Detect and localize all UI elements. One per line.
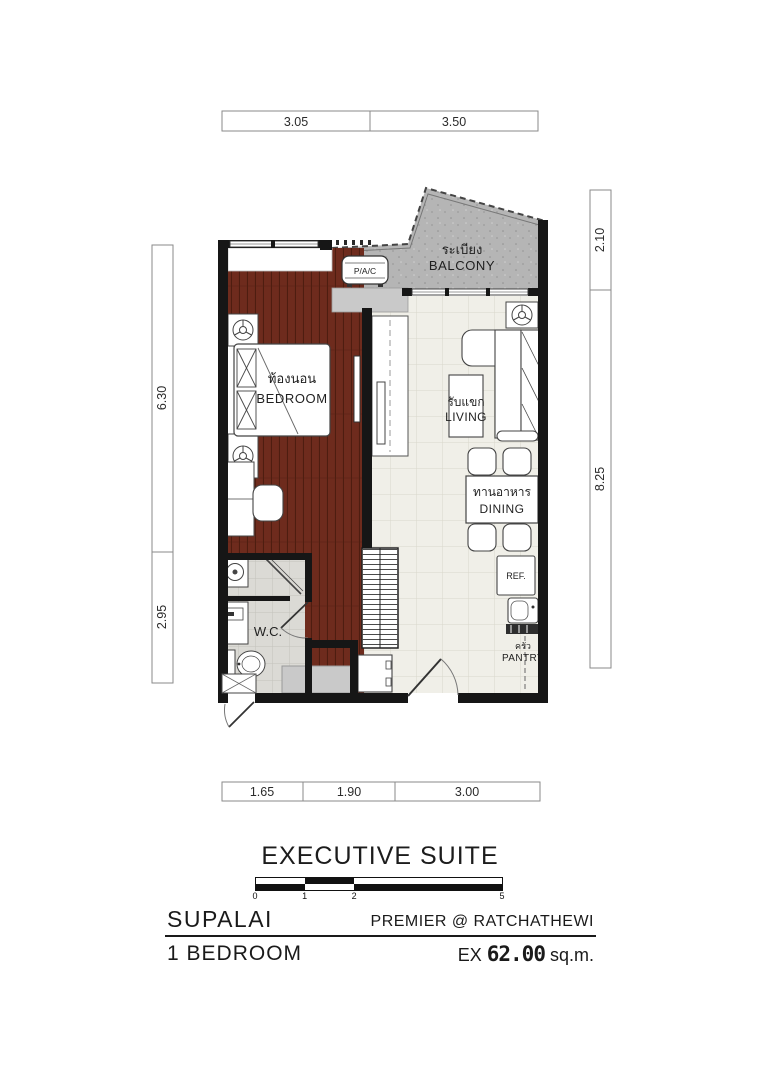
pac-unit: P/A/C bbox=[342, 256, 388, 287]
tv-panel-bedroom bbox=[354, 356, 360, 422]
plan-title: EXECUTIVE SUITE bbox=[0, 842, 760, 871]
corner-table bbox=[506, 302, 538, 328]
hall-counter bbox=[282, 666, 353, 693]
living-label-thai: รับแขก bbox=[447, 395, 484, 409]
project-name: PREMIER @ RATCHATHEWI bbox=[371, 913, 594, 931]
scale-seg bbox=[305, 878, 354, 884]
floorplan-page: 3.05 3.50 1.65 1.90 3.00 6.30 2.95 2.10 … bbox=[0, 0, 763, 1080]
coffee-table: รับแขก LIVING bbox=[445, 375, 487, 437]
dim-bottom-2: 1.90 bbox=[337, 785, 361, 799]
balcony-label-thai: ระเบียง bbox=[442, 242, 483, 257]
floorplan-svg: 3.05 3.50 1.65 1.90 3.00 6.30 2.95 2.10 … bbox=[0, 0, 763, 820]
tv-panel-living bbox=[377, 382, 385, 444]
pantry-label-en: PANTRY bbox=[502, 653, 544, 664]
pantry-label-thai: ครัว bbox=[515, 641, 531, 651]
kitchen-sink bbox=[506, 598, 539, 634]
unit-area: EX 62.00 sq.m. bbox=[458, 942, 594, 966]
dim-top-1: 3.05 bbox=[284, 115, 308, 129]
railing-ticks bbox=[336, 240, 371, 245]
scale-bar: 0 1 2 5 bbox=[255, 877, 503, 903]
bed: ท้องนอน BEDROOM bbox=[226, 344, 330, 436]
bedroom-label-thai: ท้องนอน bbox=[268, 371, 316, 386]
dimension-row-bottom: 1.65 1.90 3.00 bbox=[222, 782, 540, 801]
curtain-strip bbox=[228, 248, 332, 271]
dining-label-en: DINING bbox=[480, 502, 525, 516]
footer-divider bbox=[165, 935, 596, 937]
wardrobe bbox=[362, 548, 398, 648]
dim-right-1: 2.10 bbox=[593, 228, 607, 252]
dining-label-thai: ทานอาหาร bbox=[473, 485, 531, 499]
bedroom-label-en: BEDROOM bbox=[256, 391, 327, 406]
scale-seg bbox=[256, 884, 305, 890]
dim-bottom-1: 1.65 bbox=[250, 785, 274, 799]
shoe-cabinet bbox=[358, 655, 392, 692]
wc-label: W.C. bbox=[254, 624, 282, 639]
fridge: REF. bbox=[497, 556, 535, 595]
dimension-row-top: 3.05 3.50 bbox=[222, 111, 538, 131]
scale-tick-0: 0 bbox=[252, 891, 257, 901]
dim-bottom-3: 3.00 bbox=[455, 785, 479, 799]
scale-tick-1: 1 bbox=[302, 891, 307, 901]
scale-seg bbox=[354, 884, 502, 890]
bedroom-window bbox=[230, 240, 318, 248]
unit-type: 1 BEDROOM bbox=[167, 942, 302, 966]
area-value: 62.00 bbox=[487, 942, 545, 966]
scale-tick-5: 5 bbox=[499, 891, 504, 901]
desk-chair bbox=[253, 485, 283, 521]
dining-chair bbox=[468, 448, 496, 475]
living-label-en: LIVING bbox=[445, 410, 487, 424]
dim-top-2: 3.50 bbox=[442, 115, 466, 129]
brand-name: SUPALAI bbox=[167, 906, 273, 933]
dim-left-2: 2.95 bbox=[155, 605, 169, 629]
footer: SUPALAI PREMIER @ RATCHATHEWI 1 BEDROOM … bbox=[167, 902, 594, 972]
scale-tick-2: 2 bbox=[352, 891, 357, 901]
dimension-col-right: 2.10 8.25 bbox=[590, 190, 611, 668]
dim-left-1: 6.30 bbox=[155, 386, 169, 410]
dining-chair bbox=[468, 524, 496, 551]
dining-chair bbox=[503, 524, 531, 551]
nightstand-top bbox=[228, 314, 258, 346]
fridge-label: REF. bbox=[506, 571, 526, 581]
dim-right-2: 8.25 bbox=[593, 467, 607, 491]
dining-chair bbox=[503, 448, 531, 475]
living-window bbox=[412, 288, 528, 296]
area-unit: sq.m. bbox=[550, 945, 594, 965]
dimension-col-left: 6.30 2.95 bbox=[152, 245, 173, 683]
scale-bar-body bbox=[255, 877, 503, 891]
balcony-label-en: BALCONY bbox=[429, 258, 495, 273]
area-prefix: EX bbox=[458, 945, 482, 965]
pac-label: P/A/C bbox=[354, 266, 376, 276]
